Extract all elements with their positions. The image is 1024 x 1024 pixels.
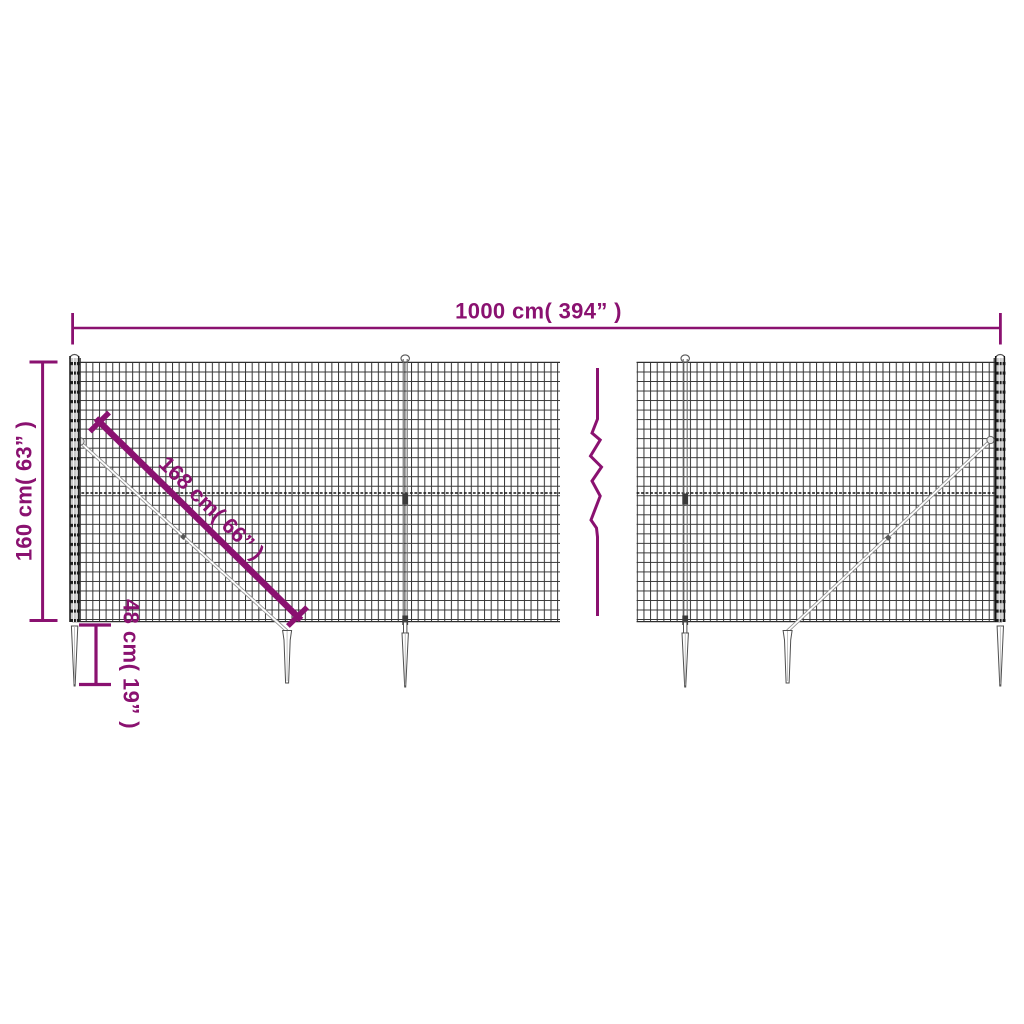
- svg-text:160 cm( 63” ): 160 cm( 63” ): [12, 421, 37, 561]
- svg-text:48 cm( 19” ): 48 cm( 19” ): [118, 599, 143, 729]
- svg-text:1000 cm( 394” ): 1000 cm( 394” ): [455, 299, 622, 324]
